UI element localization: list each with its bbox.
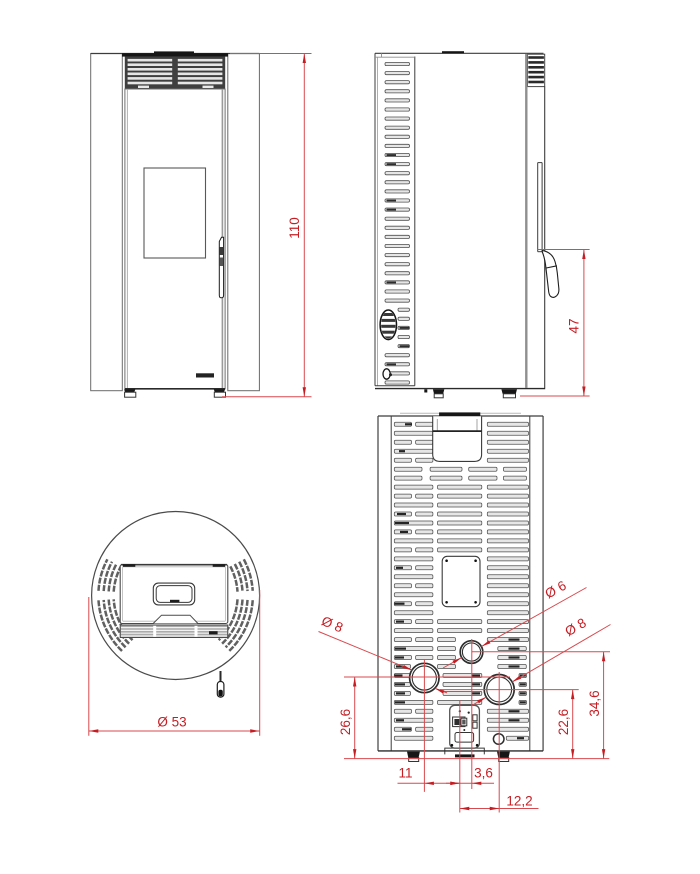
svg-text:3,6: 3,6 (474, 765, 493, 780)
svg-text:22,6: 22,6 (556, 709, 571, 735)
svg-text:12,2: 12,2 (506, 793, 532, 808)
svg-text:110: 110 (287, 217, 302, 239)
svg-text:11: 11 (398, 765, 412, 780)
svg-text:Ø 53: Ø 53 (157, 715, 186, 730)
svg-text:34,6: 34,6 (587, 690, 602, 716)
svg-text:26,6: 26,6 (338, 709, 353, 735)
svg-text:47: 47 (567, 318, 582, 333)
